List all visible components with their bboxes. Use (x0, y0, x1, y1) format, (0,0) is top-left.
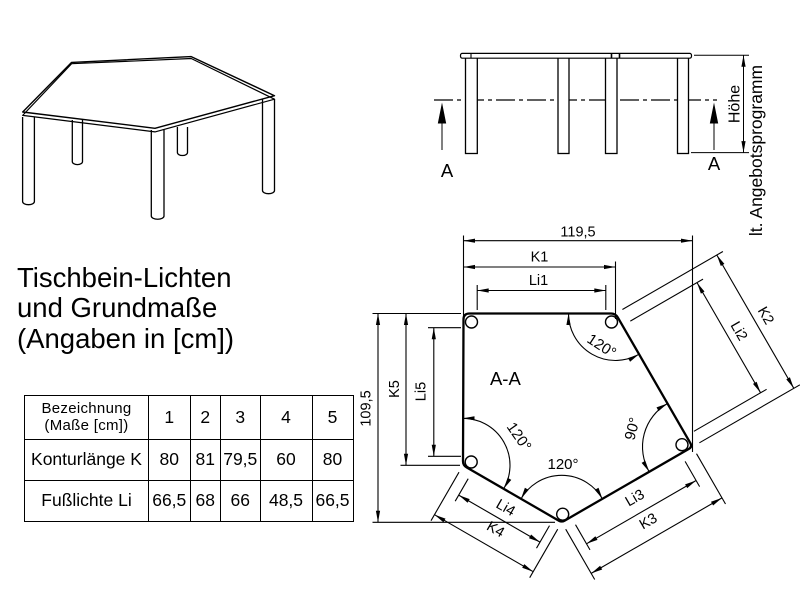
svg-text:A: A (441, 160, 454, 181)
svg-text:K3: K3 (637, 510, 660, 533)
svg-text:Höhe: Höhe (727, 85, 744, 123)
svg-text:109,5: 109,5 (359, 390, 375, 426)
svg-text:120°: 120° (547, 456, 578, 473)
svg-text:Li1: Li1 (529, 273, 548, 289)
svg-text:A-A: A-A (490, 368, 522, 389)
svg-text:Li5: Li5 (413, 382, 429, 401)
svg-text:lt. Angebotsprogramm: lt. Angebotsprogramm (746, 65, 766, 236)
svg-text:K5: K5 (387, 380, 403, 398)
svg-text:119,5: 119,5 (560, 225, 595, 241)
svg-text:Li3: Li3 (623, 487, 648, 511)
svg-text:K1: K1 (531, 250, 549, 266)
svg-text:A: A (708, 153, 721, 174)
